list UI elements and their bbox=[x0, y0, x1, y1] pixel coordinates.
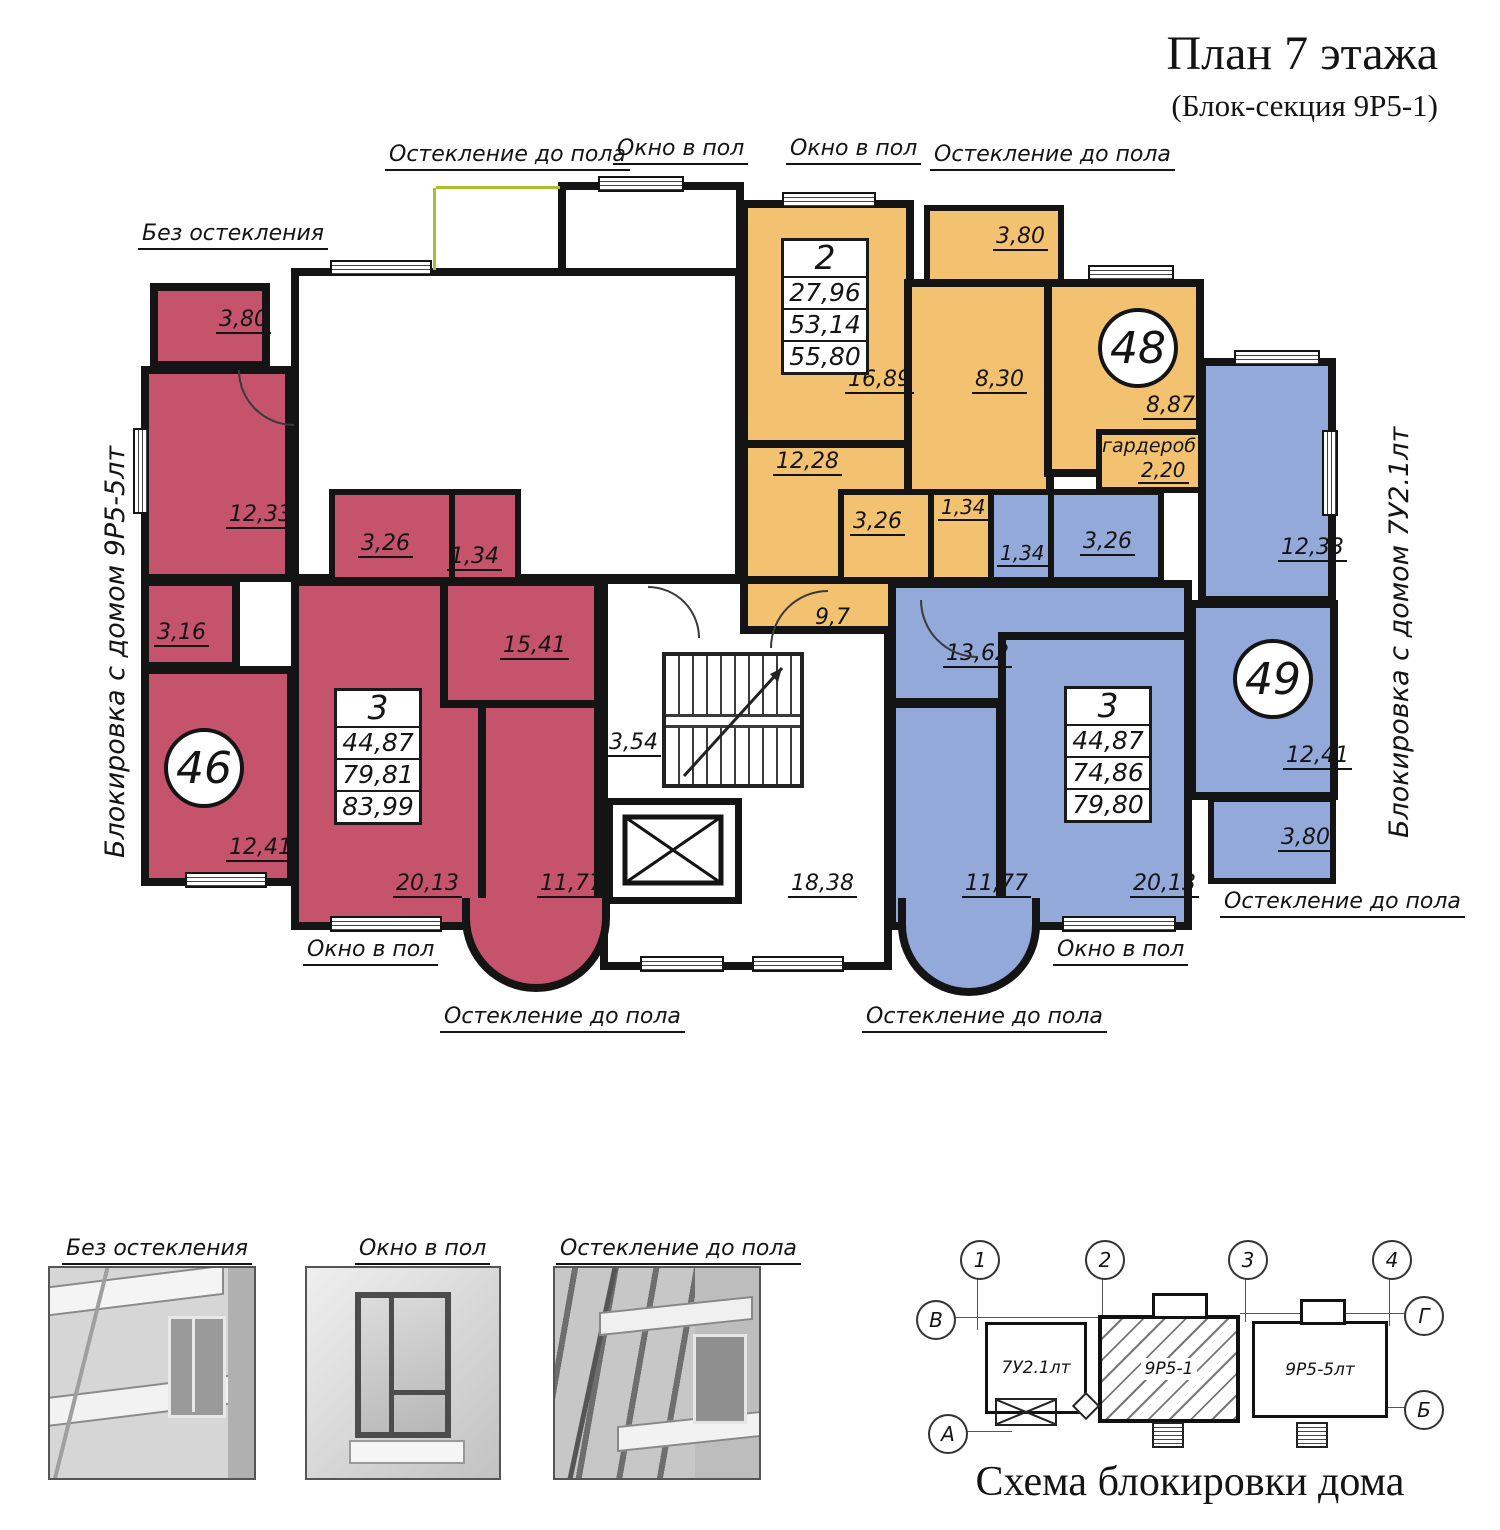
apt46-full-total: 83,99 bbox=[337, 792, 419, 822]
anno-glazing-top-right: Остекление до пола bbox=[930, 143, 1175, 171]
glazing-line bbox=[436, 186, 560, 189]
apt46-balcony-top-area: 3,80 bbox=[216, 308, 271, 334]
apt46-hall-area: 15,41 bbox=[500, 634, 569, 660]
anno-window-top-1: Окно в пол bbox=[613, 137, 748, 165]
legend-image-no-glazing bbox=[48, 1266, 256, 1480]
page-subtitle: (Блок-секция 9Р5-1) bbox=[1171, 88, 1438, 124]
anno-glazing-right: Остекление до пола bbox=[1220, 890, 1465, 918]
stairs-area: 3,54 bbox=[606, 731, 661, 757]
scheme-title: Схема блокировки дома bbox=[930, 1458, 1450, 1506]
apt48-bedroom-area: 8,87 bbox=[1143, 394, 1198, 420]
apt49-bedroom1-area: 12,33 bbox=[1278, 536, 1347, 562]
apt46-bedroom2-area: 12,41 bbox=[226, 836, 295, 862]
window-icon bbox=[330, 260, 432, 276]
hall-area: 18,38 bbox=[788, 872, 857, 898]
window-icon bbox=[752, 956, 844, 972]
window-icon bbox=[1088, 265, 1174, 281]
window-icon bbox=[782, 192, 876, 208]
apt46-rooms-count: 3 bbox=[337, 691, 419, 728]
apt48-info-table: 2 27,96 53,14 55,80 bbox=[781, 238, 869, 375]
apt49-area-total: 74,86 bbox=[1067, 758, 1149, 790]
apt49-bedroom2-area: 12,41 bbox=[1283, 744, 1352, 770]
scheme-axis-4: 4 bbox=[1372, 1240, 1412, 1280]
apt49-info-table: 3 44,87 74,86 79,80 bbox=[1064, 686, 1152, 823]
side-label-left: Блокировка с домом 9Р5-5лт bbox=[100, 338, 131, 858]
apt48-rooms-count: 2 bbox=[784, 241, 866, 278]
apt49-number-badge: 49 bbox=[1233, 639, 1313, 719]
apt48-balcony-area: 3,80 bbox=[993, 225, 1048, 251]
scheme-axis-g: Г bbox=[1404, 1296, 1444, 1336]
apt49-living-area: 20,13 bbox=[1130, 872, 1199, 898]
anno-glazing-bottom-right: Остекление до пола bbox=[862, 1005, 1107, 1033]
window-icon bbox=[1234, 350, 1320, 366]
window-icon bbox=[598, 176, 684, 192]
page-title: План 7 этажа bbox=[1166, 26, 1438, 81]
legend-label-window-floor: Окно в пол bbox=[355, 1236, 490, 1265]
apt48-number-badge: 48 bbox=[1098, 308, 1178, 388]
scheme-block-9r55: 9Р5-5лт bbox=[1252, 1321, 1388, 1418]
apt46-bedroom1-area: 12,33 bbox=[226, 503, 295, 529]
apt46-balcony-bottom bbox=[462, 898, 610, 992]
room-white-step bbox=[558, 182, 744, 280]
side-label-right: Блокировка с домом 7У2.1лт bbox=[1384, 368, 1415, 838]
legend-label-no-glazing: Без остекления bbox=[62, 1236, 252, 1265]
apt46-living-total: 44,87 bbox=[337, 728, 419, 760]
anno-no-glazing: Без остекления bbox=[138, 222, 328, 250]
scheme-stair-mark bbox=[1152, 1422, 1184, 1448]
apt49-bedroom1 bbox=[1198, 358, 1336, 604]
anno-glazing-bottom-left: Остекление до пола bbox=[440, 1005, 685, 1033]
scheme-crossed-box bbox=[995, 1398, 1057, 1426]
stairs-icon bbox=[662, 652, 804, 788]
apt46-number-badge: 46 bbox=[164, 728, 244, 808]
apt49-wc bbox=[988, 489, 1056, 583]
scheme-axis-b: Б bbox=[1404, 1390, 1444, 1430]
window-icon bbox=[133, 428, 149, 514]
apt46-bath-area: 3,26 bbox=[358, 532, 413, 558]
apt49-rooms-count: 3 bbox=[1067, 689, 1149, 726]
apt49-kitchen-area: 11,77 bbox=[962, 872, 1031, 898]
apt46-info-table: 3 44,87 79,81 83,99 bbox=[334, 688, 422, 825]
apt49-full-total: 79,80 bbox=[1067, 790, 1149, 820]
window-icon bbox=[330, 916, 442, 932]
scheme-block-9r51: 9Р5-1 bbox=[1098, 1315, 1240, 1423]
anno-window-bottom-right: Окно в пол bbox=[1053, 938, 1188, 966]
elevator-icon bbox=[606, 798, 742, 904]
legend-image-window-floor bbox=[305, 1266, 501, 1480]
window-icon bbox=[640, 956, 724, 972]
apt46-living-area: 20,13 bbox=[393, 872, 462, 898]
scheme-axis-1: 1 bbox=[960, 1240, 1000, 1280]
anno-glazing-top-left: Остекление до пола bbox=[385, 143, 630, 171]
apt49-wc-area: 1,34 bbox=[997, 543, 1048, 567]
apt48-kitchen-area: 8,30 bbox=[972, 368, 1027, 394]
apt49-bath-area: 3,26 bbox=[1080, 530, 1135, 556]
apt48-wc-area: 1,34 bbox=[938, 497, 989, 521]
apt48-living-total: 27,96 bbox=[784, 278, 866, 310]
window-icon bbox=[185, 872, 267, 888]
scheme-stair-mark bbox=[1296, 1422, 1328, 1448]
scheme-bump bbox=[1300, 1299, 1346, 1325]
apt48-area-total: 53,14 bbox=[784, 310, 866, 342]
apt46-area-total: 79,81 bbox=[337, 760, 419, 792]
apt49-balcony-bottom bbox=[898, 898, 1040, 996]
apt46-storage-area: 3,16 bbox=[154, 621, 209, 647]
legend-label-glazing-full: Остекление до пола bbox=[556, 1236, 801, 1265]
apt49-balcony-right-area: 3,80 bbox=[1278, 826, 1333, 852]
window-icon bbox=[1322, 430, 1338, 516]
scheme-axis-2: 2 bbox=[1085, 1240, 1125, 1280]
anno-window-top-2: Окно в пол bbox=[786, 137, 921, 165]
apt46-kitchen-area: 11,77 bbox=[537, 872, 606, 898]
apt48-bath-area: 3,26 bbox=[850, 510, 905, 536]
apt48-wardrobe-label: гардероб bbox=[1102, 437, 1196, 457]
apt48-hall-area: 12,28 bbox=[773, 450, 842, 476]
legend-image-glazing-full bbox=[553, 1266, 761, 1480]
scheme-axis-a: А bbox=[928, 1414, 968, 1454]
scheme-bump bbox=[1152, 1293, 1208, 1319]
anno-window-bottom-left: Окно в пол bbox=[303, 938, 438, 966]
apt48-full-total: 55,80 bbox=[784, 342, 866, 372]
apt49-living-total: 44,87 bbox=[1067, 726, 1149, 758]
scheme-axis-v: В bbox=[916, 1300, 956, 1340]
apt46-wc-area: 1,34 bbox=[447, 545, 502, 571]
glazing-line bbox=[433, 188, 436, 270]
apt48-wardrobe-area: 2,20 bbox=[1138, 460, 1189, 484]
scheme-axis-3: 3 bbox=[1228, 1240, 1268, 1280]
window-icon bbox=[1062, 916, 1176, 932]
floor-plan-sheet: План 7 этажа (Блок-секция 9Р5-1) Остекле… bbox=[0, 0, 1500, 1530]
